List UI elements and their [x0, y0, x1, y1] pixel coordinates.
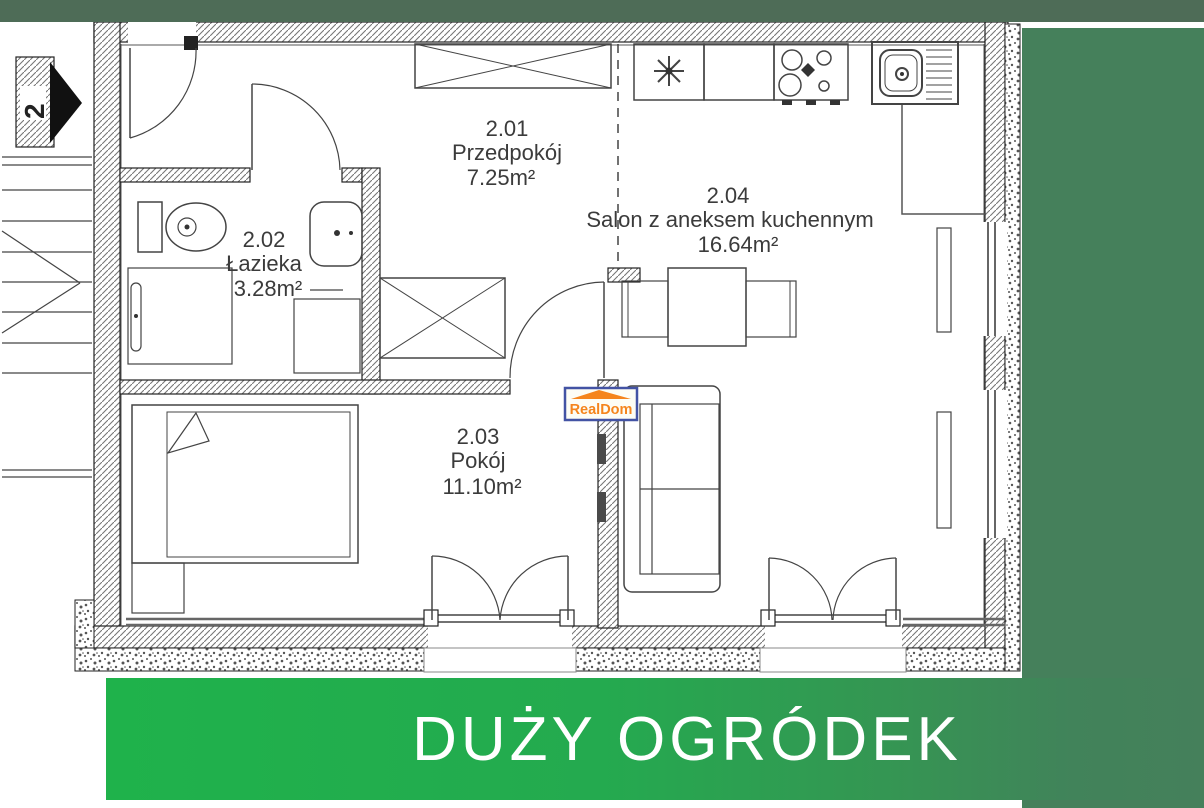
garden-banner-text: DUŻY OGRÓDEK — [348, 704, 962, 775]
nightstand — [132, 563, 184, 613]
wardrobe-hall-bottom — [380, 278, 505, 358]
toilet-icon — [138, 202, 226, 252]
bathroom-sink-icon — [310, 202, 362, 266]
room-number: 2.01 — [486, 116, 529, 141]
room-labels: 2.01 Przedpokój 7.25m² 2.02 Łazieka 3.28… — [226, 116, 874, 499]
radiator — [937, 412, 951, 528]
room-area: 11.10m² — [442, 474, 521, 499]
room-label-2-03: 2.03 Pokój 11.10m² — [442, 424, 521, 499]
top-green-strip — [0, 0, 1204, 22]
french-door-left — [424, 556, 576, 672]
exterior-walls — [75, 22, 1020, 671]
fridge-snowflake-icon — [654, 56, 684, 86]
kitchen — [634, 42, 958, 105]
furniture — [132, 44, 951, 613]
room-label-2-02: 2.02 Łazieka 3.28m² — [226, 227, 303, 301]
entry-door-leaf — [184, 36, 198, 50]
stair-level-label: 2 — [19, 103, 50, 119]
room-number: 2.04 — [707, 183, 750, 208]
wardrobe-hall-top — [415, 44, 611, 88]
logo-text: RealDom — [570, 402, 633, 418]
room-number: 2.03 — [457, 424, 500, 449]
real-estate-floorplan-page: 2 — [0, 0, 1204, 808]
realdom-logo: RealDom — [565, 388, 637, 420]
washing-machine-icon — [294, 299, 360, 373]
sofa — [624, 386, 720, 592]
room-label-2-04: 2.04 Salon z aneksem kuchennym 16.64m² — [586, 183, 873, 257]
room-name: Łazieka — [226, 251, 303, 276]
interior-walls — [120, 104, 986, 628]
kitchen-sink-icon — [872, 42, 958, 104]
kitchen-boundary-line — [902, 104, 986, 214]
garden-banner: DUŻY OGRÓDEK — [106, 678, 1204, 800]
arrow-right-icon — [50, 62, 82, 143]
stair-direction-arrow: 2 — [16, 57, 82, 147]
wall-mark — [597, 434, 606, 464]
stove-icon — [774, 44, 848, 105]
bed — [132, 405, 358, 563]
radiator — [937, 228, 951, 332]
wall-mark — [597, 492, 606, 522]
shower-icon — [128, 268, 232, 364]
room-name: Przedpokój — [452, 140, 562, 165]
room-area: 3.28m² — [234, 276, 302, 301]
french-door-right — [760, 558, 906, 672]
room-label-2-01: 2.01 Przedpokój 7.25m² — [452, 116, 562, 190]
room-name: Pokój — [450, 448, 505, 473]
room-area: 16.64m² — [698, 232, 779, 257]
staircase — [2, 157, 92, 477]
room-area: 7.25m² — [467, 165, 535, 190]
dining-table-with-chairs — [622, 268, 796, 346]
room-name: Salon z aneksem kuchennym — [586, 207, 873, 232]
room-number: 2.02 — [243, 227, 286, 252]
